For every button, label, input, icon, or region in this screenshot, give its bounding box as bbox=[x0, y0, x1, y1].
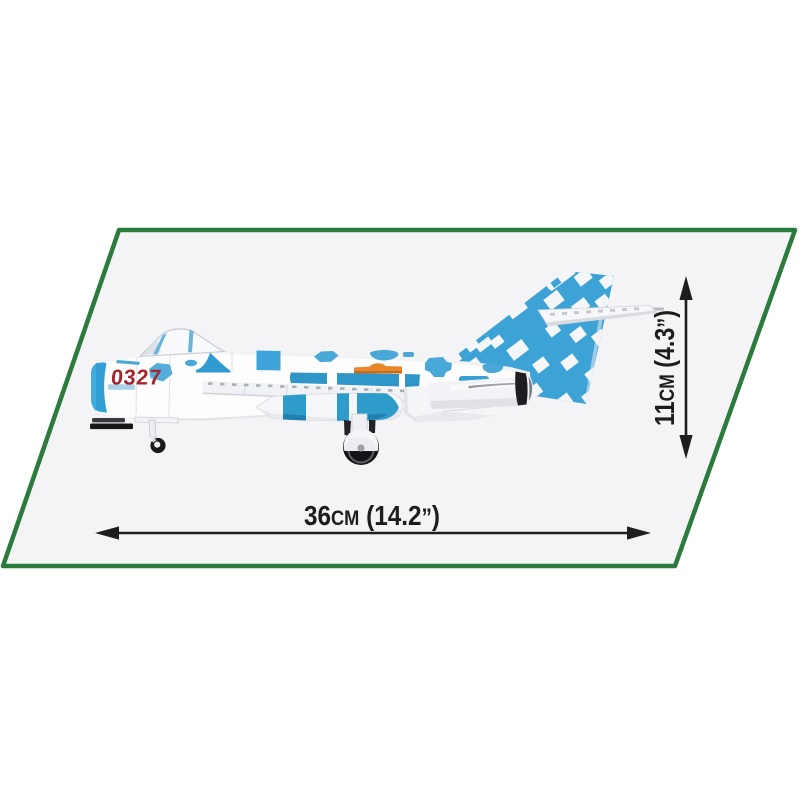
svg-text:0327: 0327 bbox=[110, 366, 163, 390]
svg-text:36CM (14.2”): 36CM (14.2”) bbox=[304, 500, 440, 531]
svg-text:11CM (4.3”): 11CM (4.3”) bbox=[649, 310, 680, 426]
